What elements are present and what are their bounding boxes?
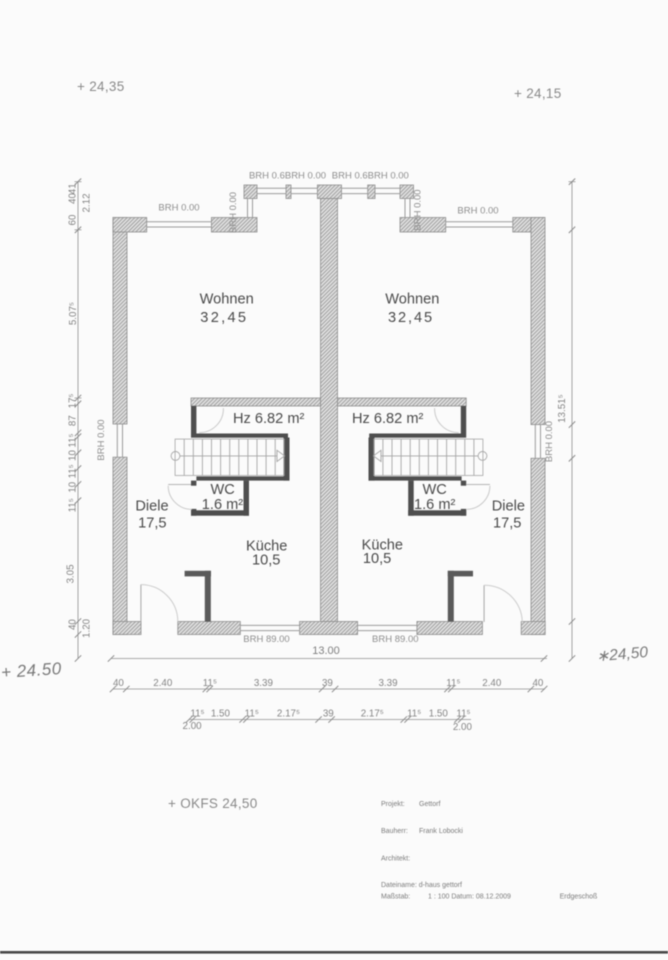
svg-text:Maßstab:: Maßstab: (381, 894, 410, 901)
svg-text:2.17⁵: 2.17⁵ (277, 709, 300, 720)
svg-text:1.6 m²: 1.6 m² (202, 497, 243, 513)
svg-text:2.40: 2.40 (482, 678, 502, 689)
svg-text:11⁵: 11⁵ (245, 709, 259, 720)
svg-text:+ 24,15: + 24,15 (514, 86, 562, 101)
svg-text:40: 40 (68, 619, 79, 630)
svg-text:BRH 89.00: BRH 89.00 (372, 634, 418, 645)
svg-text:Diele: Diele (135, 499, 168, 515)
svg-text:Projekt:: Projekt: (381, 801, 405, 808)
svg-text:11⁵: 11⁵ (68, 464, 79, 478)
svg-text:+ OKFS 24,50: + OKFS 24,50 (168, 796, 258, 811)
svg-text:WC: WC (211, 482, 235, 498)
svg-text:Hz 6.82 m²: Hz 6.82 m² (352, 411, 424, 427)
svg-text:WC: WC (423, 482, 447, 498)
svg-text:11⁵: 11⁵ (190, 709, 204, 720)
svg-text:2.00: 2.00 (453, 722, 473, 733)
svg-text:BRH 0.00: BRH 0.00 (96, 419, 107, 460)
svg-text:Bauherr:: Bauherr: (381, 828, 408, 835)
svg-text:3.05: 3.05 (66, 564, 77, 584)
svg-text:BRH 0.00: BRH 0.00 (413, 189, 424, 230)
svg-text:17⁵: 17⁵ (68, 394, 79, 409)
svg-text:Wohnen: Wohnen (385, 292, 439, 308)
svg-text:2.17⁵: 2.17⁵ (361, 709, 384, 720)
svg-text:3.39: 3.39 (378, 678, 397, 689)
svg-text:Wohnen: Wohnen (200, 292, 254, 308)
svg-text:Hz 6.82 m²: Hz 6.82 m² (233, 411, 305, 427)
svg-text:Erdgeschoß: Erdgeschoß (560, 894, 598, 901)
svg-text:5.07⁵: 5.07⁵ (68, 302, 79, 325)
svg-text:60: 60 (68, 214, 79, 225)
svg-text:13.00: 13.00 (312, 645, 340, 657)
svg-text:10: 10 (68, 450, 79, 461)
svg-text:Dateiname: d-haus gettorf: Dateiname: d-haus gettorf (381, 882, 462, 889)
svg-text:1.20: 1.20 (82, 618, 93, 638)
svg-text:11⁵: 11⁵ (407, 709, 421, 720)
svg-text:13.51⁵: 13.51⁵ (557, 394, 568, 423)
svg-text:32,45: 32,45 (388, 310, 434, 326)
svg-text:1.50: 1.50 (211, 709, 231, 720)
svg-text:40: 40 (113, 678, 124, 689)
svg-text:3.39: 3.39 (254, 678, 273, 689)
svg-text:2.00: 2.00 (183, 721, 203, 732)
svg-text:+ 24,35: + 24,35 (77, 79, 125, 94)
svg-text:BRH 0.00: BRH 0.00 (457, 206, 498, 217)
svg-text:Frank Lobocki: Frank Lobocki (419, 828, 463, 835)
svg-text:1.6 m²: 1.6 m² (414, 497, 455, 513)
svg-text:11⁵: 11⁵ (68, 433, 79, 447)
svg-text:39: 39 (323, 709, 334, 720)
svg-text:BRH 0.00: BRH 0.00 (544, 421, 555, 462)
svg-text:17,5: 17,5 (138, 516, 166, 532)
svg-text:11⁵: 11⁵ (456, 709, 470, 720)
svg-text:40: 40 (532, 678, 543, 689)
svg-text:BRH 0.00: BRH 0.00 (158, 203, 199, 214)
svg-text:2.12: 2.12 (82, 193, 93, 212)
svg-text:17,5: 17,5 (493, 516, 521, 532)
svg-text:BRH 0.6BRH 0.00: BRH 0.6BRH 0.00 (332, 171, 409, 182)
svg-text:BRH 89.00: BRH 89.00 (243, 634, 289, 645)
svg-text:10,5: 10,5 (363, 551, 391, 567)
svg-text:2.40: 2.40 (153, 678, 173, 689)
svg-text:Diele: Diele (492, 499, 525, 515)
svg-text:BRH 0.00: BRH 0.00 (228, 192, 239, 233)
svg-text:32,45: 32,45 (200, 310, 248, 326)
svg-text:10,5: 10,5 (252, 553, 280, 569)
svg-text:87: 87 (68, 415, 79, 426)
svg-text:11⁵: 11⁵ (68, 498, 79, 512)
svg-text:39: 39 (322, 678, 333, 689)
svg-text:41: 41 (68, 183, 79, 194)
svg-text:BRH 0.6BRH 0.00: BRH 0.6BRH 0.00 (249, 171, 326, 182)
svg-text:Gettorf: Gettorf (419, 801, 440, 808)
svg-text:1 : 100 Datum: 08.12.2009: 1 : 100 Datum: 08.12.2009 (428, 894, 511, 901)
svg-text:11⁵: 11⁵ (446, 678, 460, 689)
svg-text:11⁵: 11⁵ (203, 678, 217, 689)
svg-text:Architekt:: Architekt: (381, 856, 410, 863)
svg-text:1.50: 1.50 (429, 709, 449, 720)
svg-text:10: 10 (68, 481, 79, 492)
